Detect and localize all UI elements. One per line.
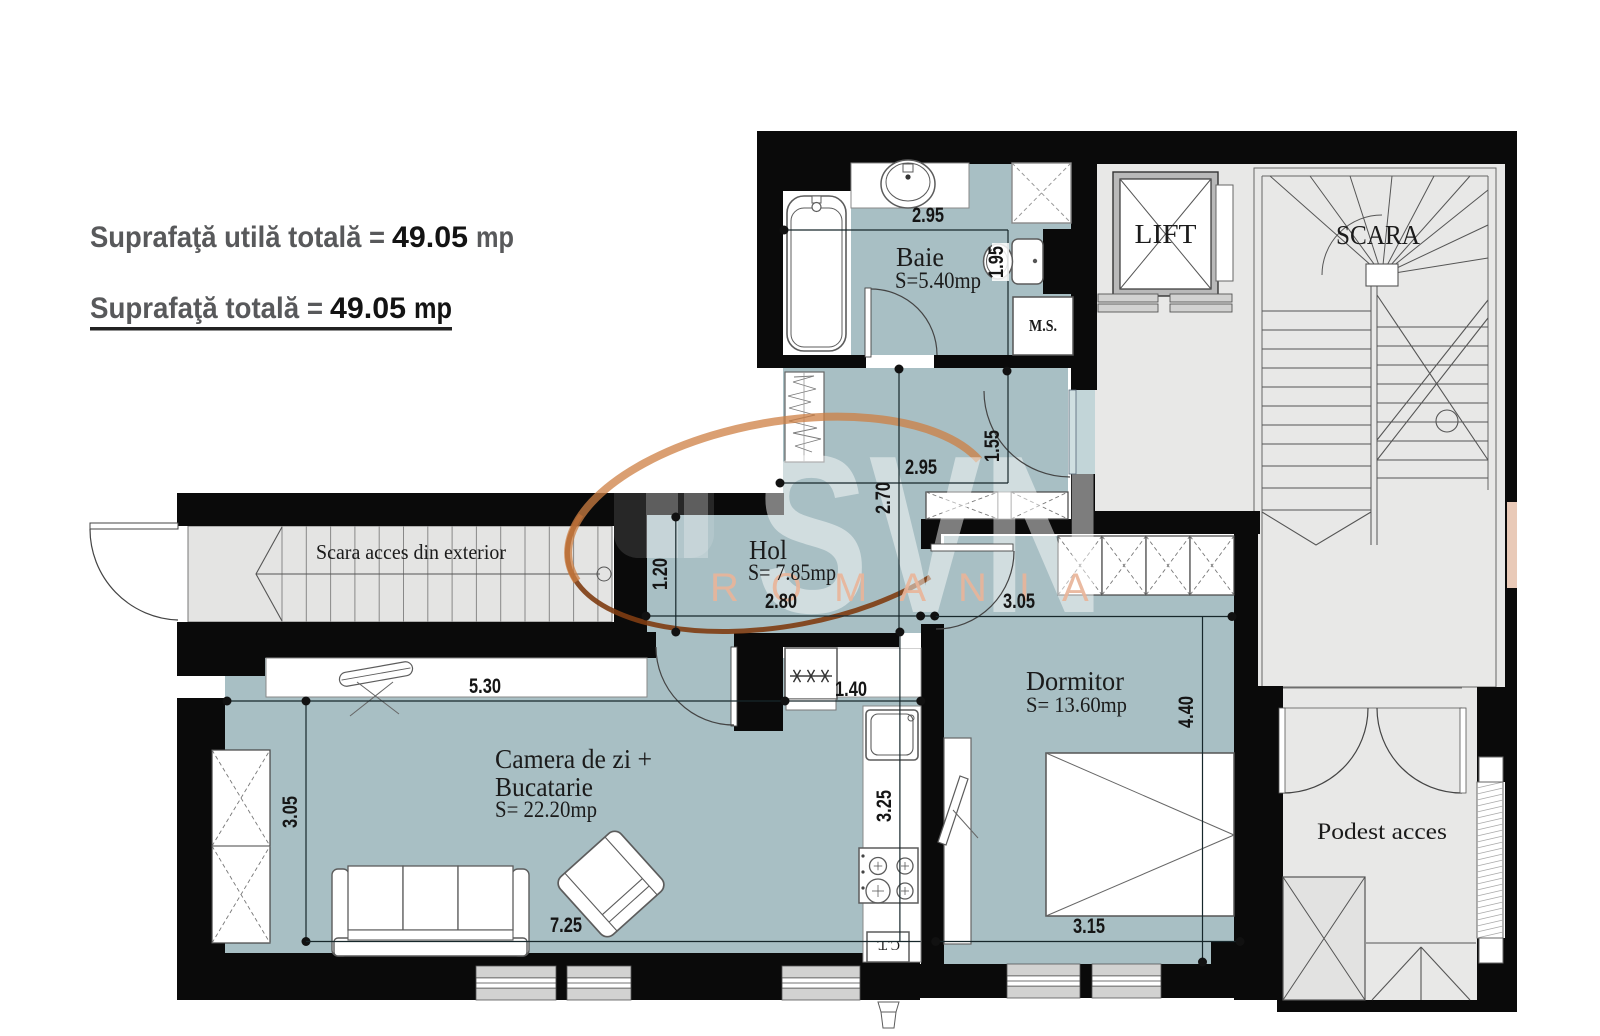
svg-text:1.55: 1.55 bbox=[981, 430, 1004, 462]
svg-text:3.25: 3.25 bbox=[873, 790, 896, 822]
svg-text:Camera de zi +: Camera de zi + bbox=[495, 744, 652, 774]
svg-text:3.15: 3.15 bbox=[1073, 915, 1105, 938]
svg-text:1.40: 1.40 bbox=[835, 678, 867, 701]
svg-text:3.05: 3.05 bbox=[279, 796, 302, 828]
svg-text:S= 13.60mp: S= 13.60mp bbox=[1026, 692, 1127, 717]
svg-text:2.95: 2.95 bbox=[912, 204, 944, 227]
svg-text:7.25: 7.25 bbox=[550, 914, 582, 937]
svg-text:Suprafaţă utilă totală =: Suprafaţă utilă totală = bbox=[90, 221, 385, 254]
svg-text:1.20: 1.20 bbox=[649, 558, 672, 590]
svg-text:mp: mp bbox=[414, 292, 452, 325]
svg-text:2.70: 2.70 bbox=[872, 482, 895, 514]
svg-text:SCARA: SCARA bbox=[1336, 220, 1420, 250]
svg-text:S= 22.20mp: S= 22.20mp bbox=[495, 797, 597, 822]
svg-text:4.40: 4.40 bbox=[1175, 696, 1198, 728]
svg-text:SVN: SVN bbox=[755, 408, 1105, 660]
svg-text:C.T.: C.T. bbox=[876, 937, 900, 952]
svg-text:Suprafaţă totală =: Suprafaţă totală = bbox=[90, 292, 323, 325]
svg-text:2.80: 2.80 bbox=[765, 590, 797, 613]
svg-text:49.05: 49.05 bbox=[392, 221, 468, 254]
svg-text:1.95: 1.95 bbox=[985, 246, 1008, 278]
svg-text:3.05: 3.05 bbox=[1003, 590, 1035, 613]
svg-text:2.95: 2.95 bbox=[905, 456, 937, 479]
svg-text:Podest acces: Podest acces bbox=[1317, 819, 1447, 844]
svg-text:49.05: 49.05 bbox=[330, 292, 406, 325]
svg-text:Scara acces din exterior: Scara acces din exterior bbox=[316, 540, 506, 564]
svg-text:S=5.40mp: S=5.40mp bbox=[895, 268, 981, 293]
svg-text:5.30: 5.30 bbox=[469, 675, 501, 698]
svg-text:LIFT: LIFT bbox=[1135, 219, 1198, 249]
svg-text:M.S.: M.S. bbox=[1029, 316, 1057, 335]
svg-text:S= 7.85mp: S= 7.85mp bbox=[748, 560, 836, 585]
svg-text:mp: mp bbox=[476, 221, 514, 254]
